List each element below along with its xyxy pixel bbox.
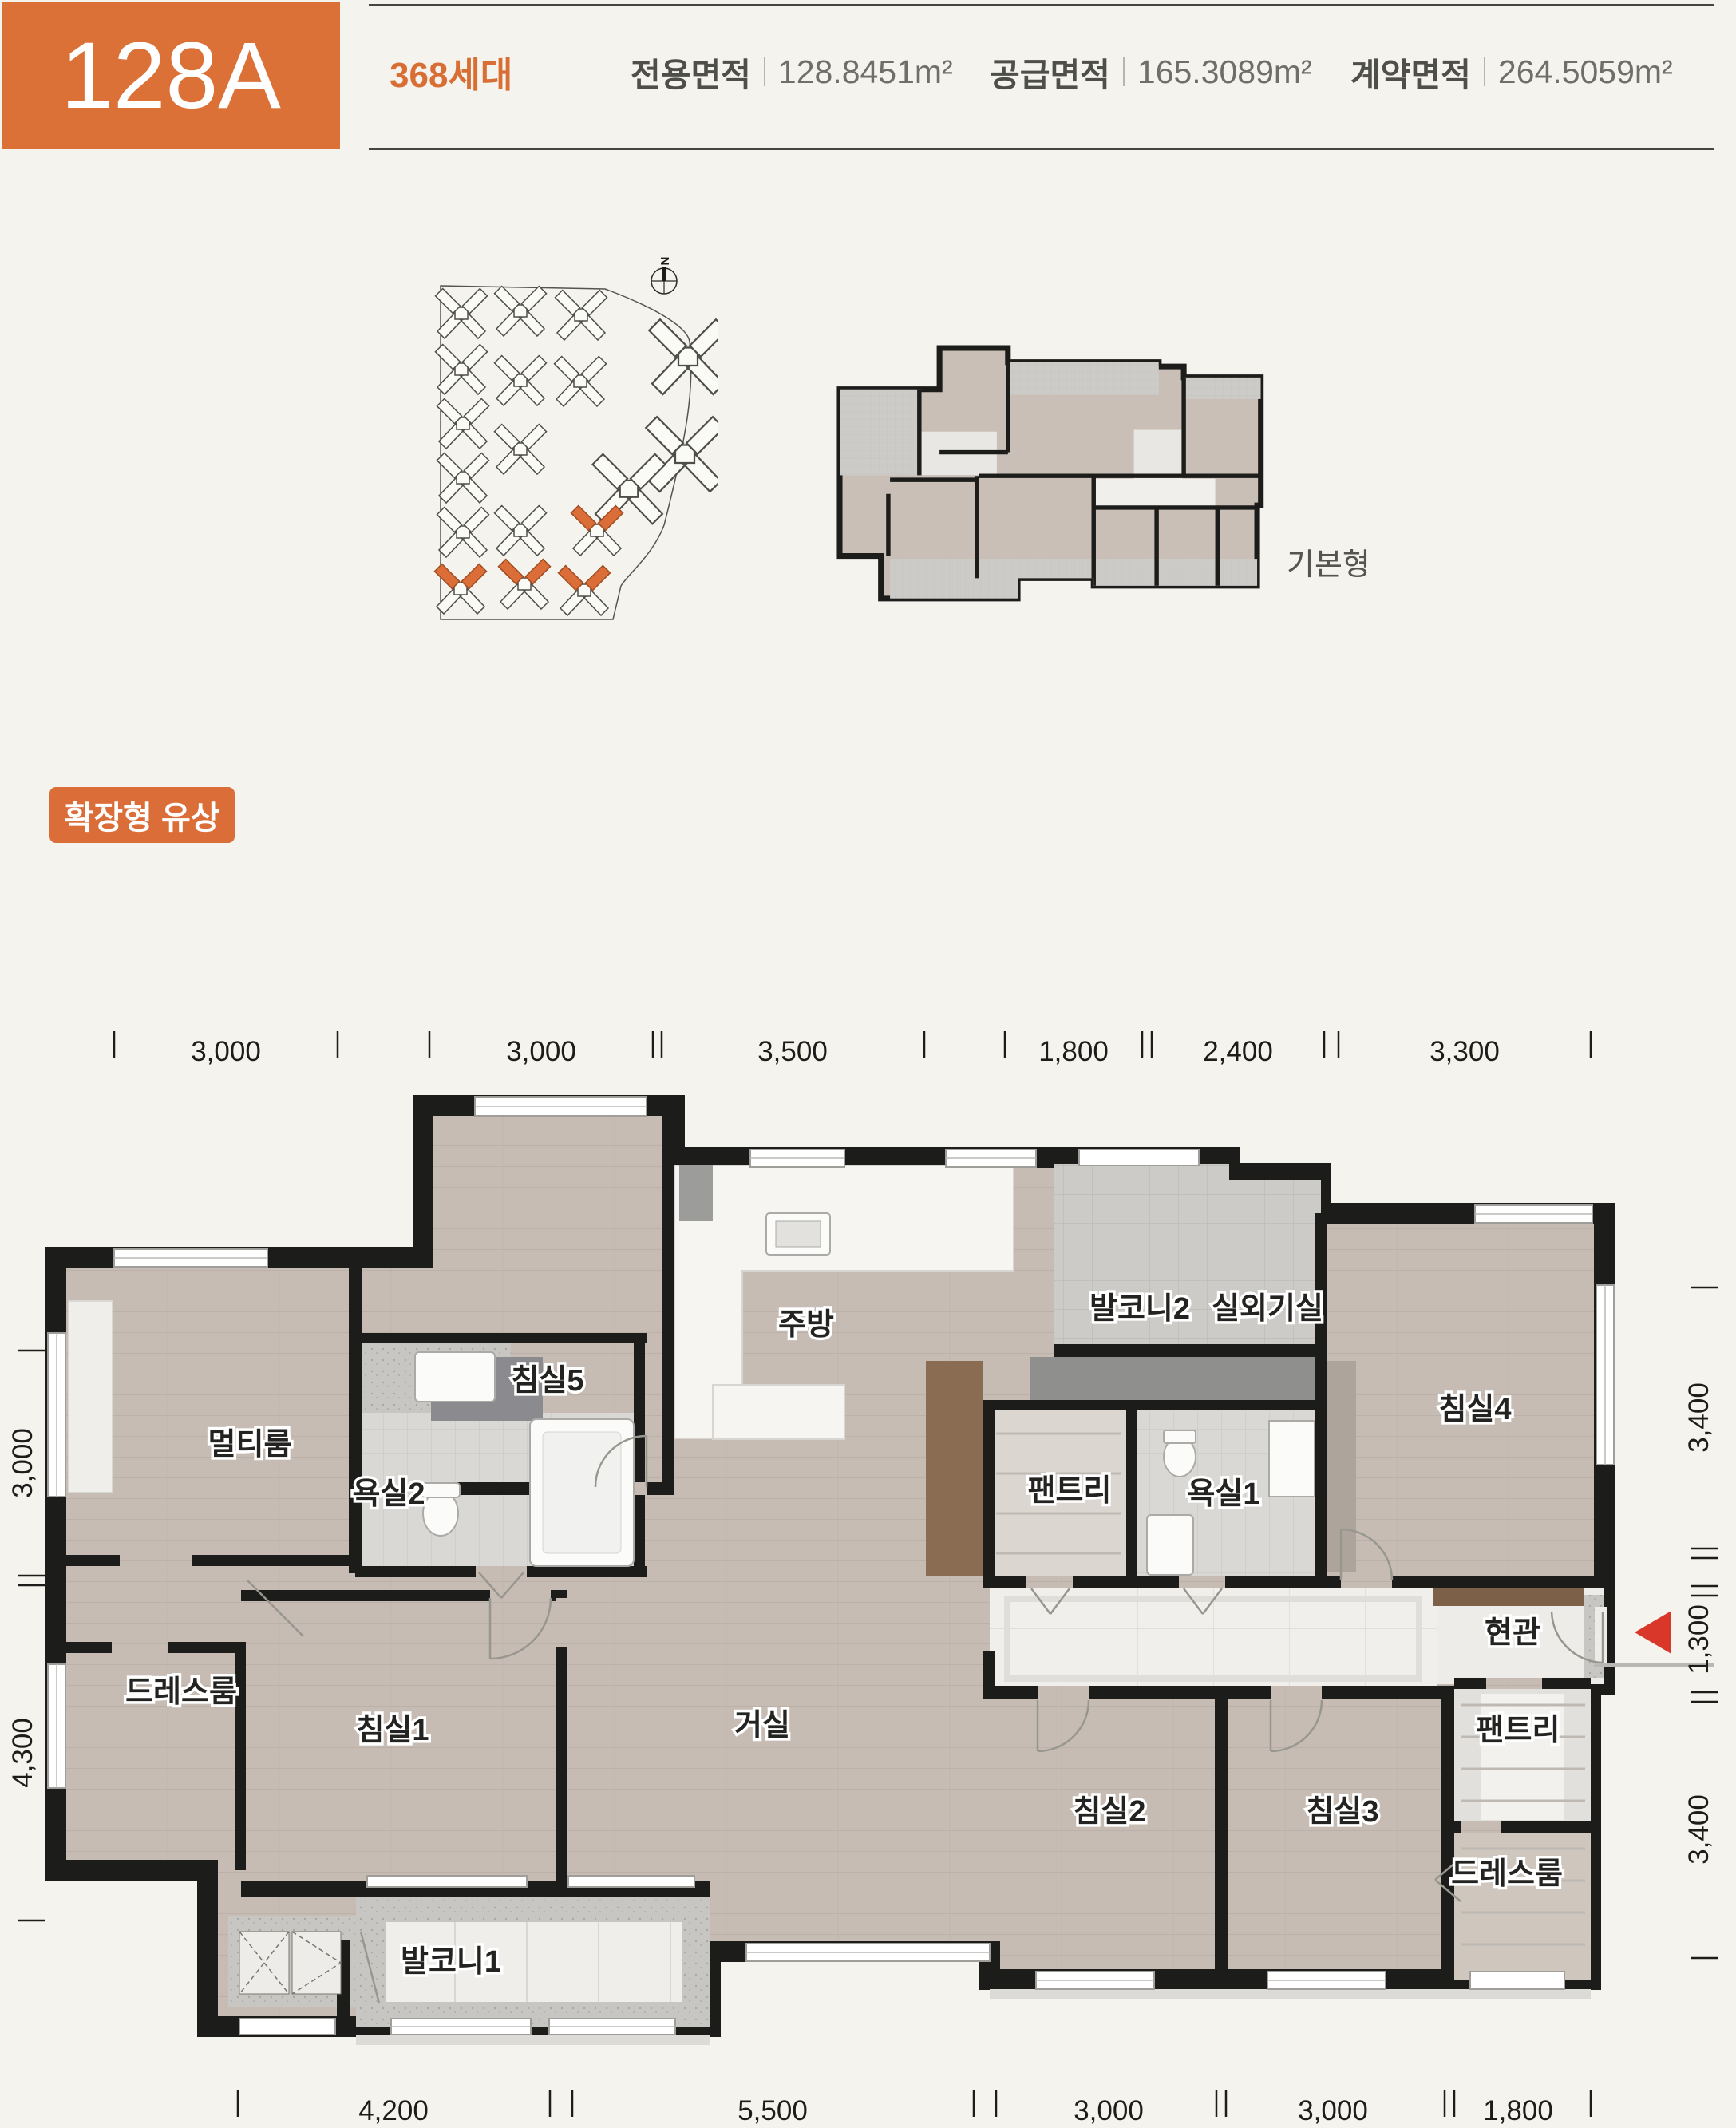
exclusive-area-group: 전용면적 128.8451m² bbox=[631, 48, 953, 96]
header-top-rule bbox=[369, 4, 1714, 6]
supply-area-group: 공급면적 165.3089m² bbox=[990, 48, 1312, 96]
households-count: 368세대 bbox=[390, 46, 512, 97]
svg-text:1,800: 1,800 bbox=[1038, 1036, 1109, 1067]
exclusive-area-label: 전용면적 bbox=[631, 48, 751, 96]
room-label-bedroom1: 침실1 bbox=[356, 1714, 429, 1747]
room-label-bedroom2: 침실2 bbox=[1073, 1795, 1145, 1829]
room-label-dress-room1: 드레스룸 bbox=[125, 1675, 237, 1709]
floor-plan-page: 128A 368세대 전용면적 128.8451m² 공급면적 165.3089… bbox=[0, 0, 1736, 2128]
supply-area-value: 165.3089m² bbox=[1137, 53, 1312, 91]
room-label-entrance: 현관 bbox=[1485, 1616, 1540, 1650]
divider-bar bbox=[1123, 57, 1125, 86]
room-label-multi-room: 멀티룸 bbox=[208, 1428, 292, 1462]
room-label-bathroom2: 욕실2 bbox=[352, 1477, 425, 1511]
unit-type-badge: 128A bbox=[2, 2, 340, 149]
svg-text:3,000: 3,000 bbox=[1074, 2095, 1144, 2126]
svg-text:1,800: 1,800 bbox=[1483, 2095, 1553, 2126]
divider-bar bbox=[1484, 57, 1485, 86]
svg-text:3,300: 3,300 bbox=[1430, 1036, 1500, 1067]
washbasin bbox=[1147, 1515, 1193, 1575]
compass-north-label: N bbox=[658, 257, 671, 266]
basic-type-mini-plan bbox=[830, 342, 1277, 639]
svg-text:3,000: 3,000 bbox=[1298, 2095, 1368, 2126]
compass-icon: N bbox=[651, 257, 677, 294]
site-buildings bbox=[435, 287, 719, 616]
unit-type-label: 128A bbox=[61, 22, 281, 130]
basic-type-caption: 기본형 bbox=[1287, 540, 1370, 583]
svg-text:2,400: 2,400 bbox=[1203, 1036, 1273, 1067]
svg-text:3,000: 3,000 bbox=[7, 1428, 38, 1498]
room-label-bathroom1: 욕실1 bbox=[1187, 1477, 1259, 1511]
exclusive-area-value: 128.8451m² bbox=[778, 53, 953, 91]
svg-text:3,500: 3,500 bbox=[757, 1036, 828, 1067]
svg-text:3,000: 3,000 bbox=[191, 1036, 261, 1067]
entry-arrow-icon bbox=[1635, 1611, 1671, 1654]
svg-text:3,400: 3,400 bbox=[1683, 1382, 1714, 1453]
contract-area-value: 264.5059m² bbox=[1498, 53, 1673, 91]
svg-text:4,300: 4,300 bbox=[7, 1718, 38, 1788]
room-label-balcony2: 발코니2 bbox=[1089, 1292, 1190, 1326]
shower bbox=[1269, 1421, 1315, 1497]
contract-area-label: 계약면적 bbox=[1350, 48, 1471, 96]
main-floor-plan: 침실5주방발코니2실외기실침실4멀티룸욕실2팬트리욕실1현관드레스룸침실1거실침… bbox=[0, 1022, 1736, 2128]
extended-type-label: 확장형 유상 bbox=[64, 792, 219, 838]
svg-text:3,000: 3,000 bbox=[506, 1036, 576, 1067]
extended-type-badge: 확장형 유상 bbox=[49, 787, 235, 843]
washbasin bbox=[415, 1352, 495, 1402]
header-bottom-rule bbox=[369, 148, 1714, 150]
room-label-dress-room2: 드레스룸 bbox=[1451, 1857, 1563, 1891]
contract-area-group: 계약면적 264.5059m² bbox=[1350, 48, 1673, 96]
room-label-bedroom5: 침실5 bbox=[511, 1364, 583, 1398]
svg-text:4,200: 4,200 bbox=[358, 2095, 429, 2126]
room-label-balcony1: 발코니1 bbox=[401, 1945, 501, 1979]
divider-bar bbox=[764, 57, 765, 86]
room-label-living-room: 거실 bbox=[734, 1709, 790, 1742]
room-label-outdoor-unit-room: 실외기실 bbox=[1212, 1292, 1323, 1326]
room-label-kitchen: 주방 bbox=[778, 1308, 834, 1342]
room-label-pantry2: 팬트리 bbox=[1477, 1714, 1560, 1747]
room-label-bedroom3: 침실3 bbox=[1306, 1795, 1378, 1829]
site-plan: N bbox=[427, 254, 718, 635]
room-label-bedroom4: 침실4 bbox=[1438, 1393, 1511, 1426]
svg-text:1,300: 1,300 bbox=[1683, 1604, 1714, 1675]
svg-text:3,400: 3,400 bbox=[1683, 1794, 1714, 1865]
svg-text:5,500: 5,500 bbox=[738, 2095, 808, 2126]
supply-area-label: 공급면적 bbox=[990, 48, 1110, 96]
room-label-pantry1: 팬트리 bbox=[1028, 1474, 1112, 1508]
